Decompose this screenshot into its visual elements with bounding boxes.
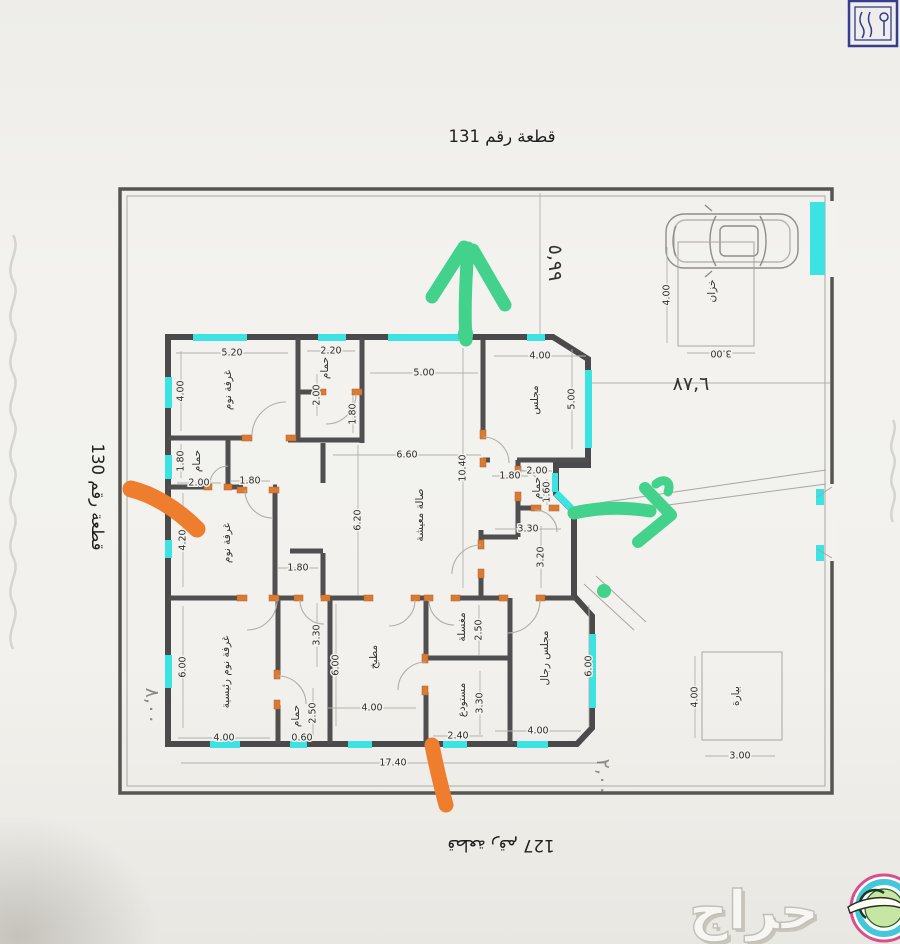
dimension-label: 5.00 bbox=[567, 388, 578, 409]
dimension-label: 3.00 bbox=[729, 751, 750, 762]
room-label: صالة معيشة bbox=[414, 488, 426, 541]
room-label: غرفة نوم bbox=[222, 369, 234, 410]
dimension-label: 3.20 bbox=[536, 546, 547, 567]
dimension-label: 6.20 bbox=[353, 509, 364, 530]
room-label: حمام bbox=[319, 357, 331, 379]
dimension-label: 1.60 bbox=[542, 481, 553, 502]
bottom-offset-note: ٢,٠٠ bbox=[592, 759, 614, 796]
dimension-label: 4.00 bbox=[361, 703, 382, 714]
dimension-label: 6.00 bbox=[584, 655, 595, 676]
dimension-label: 4.00 bbox=[527, 726, 548, 737]
dimension-label: 4.00 bbox=[662, 284, 673, 305]
orange-marker-bottom bbox=[432, 745, 446, 805]
dimension-label: 5.20 bbox=[221, 348, 242, 359]
dimension-label: 2.20 bbox=[320, 346, 341, 357]
pit-rect bbox=[702, 652, 782, 740]
room-label: مغسلة bbox=[456, 612, 468, 641]
dimension-label: 17.40 bbox=[379, 758, 406, 769]
haraj-watermark: حراج حراج bbox=[689, 875, 900, 944]
green-arrow-right bbox=[574, 508, 650, 513]
dimension-label: 1.80 bbox=[176, 450, 187, 471]
plot-title-top: قطعة رقم 131 bbox=[448, 127, 555, 147]
septic-pit-area bbox=[702, 652, 782, 740]
room-label: حمام bbox=[290, 705, 302, 727]
certification-stamp bbox=[849, 1, 897, 46]
dimension-label: 4.00 bbox=[176, 380, 187, 401]
green-arrow-up bbox=[465, 248, 468, 340]
dimension-label: 2.00 bbox=[526, 466, 547, 477]
right-offset-note: ٨٧,٦ bbox=[673, 373, 710, 395]
dimension-label: 6.00 bbox=[331, 654, 342, 675]
dimension-layer: 5.204.002.202.001.805.006.6010.406.201.8… bbox=[176, 247, 776, 769]
entrance-gap bbox=[826, 484, 838, 561]
dimension-label: 2.00 bbox=[188, 478, 209, 489]
dimension-label: 1.80 bbox=[348, 403, 359, 424]
street-width-note: ٥,٩٩ bbox=[544, 245, 566, 282]
dimension-label: 10.40 bbox=[458, 454, 469, 481]
room-label: حمام bbox=[531, 477, 543, 499]
dimension-label: 3.30 bbox=[517, 524, 538, 535]
dimension-label: 2.50 bbox=[474, 619, 485, 640]
doors bbox=[204, 389, 559, 709]
dimension-label: 4.00 bbox=[213, 733, 234, 744]
dimension-label: 4.00 bbox=[690, 686, 701, 707]
room-label: بيارة bbox=[730, 686, 742, 706]
left-offset-note: ٨,٠٠ bbox=[141, 688, 163, 725]
green-dot bbox=[597, 584, 611, 598]
dimension-label: 0.60 bbox=[291, 733, 312, 744]
dimension-label: 4.20 bbox=[178, 529, 189, 550]
dimension-label: 1.80 bbox=[239, 476, 260, 487]
brand-text: حراج bbox=[689, 879, 819, 942]
dimension-label: 4.00 bbox=[529, 351, 550, 362]
room-label: مجلس رجال bbox=[539, 631, 551, 686]
room-label: غرفة نوم bbox=[221, 522, 233, 563]
dimension-label: 2.00 bbox=[312, 384, 323, 405]
room-label: مطبخ bbox=[368, 645, 380, 669]
dimension-label: 3.30 bbox=[475, 692, 486, 713]
orange-marker-left bbox=[131, 489, 197, 529]
dimension-label: 6.60 bbox=[396, 450, 417, 461]
dimension-label: 5.00 bbox=[413, 368, 434, 379]
gate-window bbox=[810, 202, 825, 275]
car-drawing bbox=[666, 205, 798, 277]
faint-handwriting bbox=[10, 235, 894, 649]
dimension-label: 2.40 bbox=[447, 731, 468, 742]
brand-icon bbox=[848, 875, 900, 941]
room-label: غرفة نوم رئيسية bbox=[220, 635, 232, 708]
room-label: حمام bbox=[191, 450, 203, 472]
plot-label-left: قطعة رقم 130 bbox=[87, 443, 107, 550]
gate-gap bbox=[826, 201, 838, 277]
floor-plan-page: 5.204.002.202.001.805.006.6010.406.201.8… bbox=[0, 0, 900, 944]
dimension-label: 1.80 bbox=[499, 471, 520, 482]
room-label: خزان bbox=[706, 280, 718, 303]
room-label: مستودع bbox=[456, 683, 468, 718]
dimension-label: 1.80 bbox=[287, 563, 308, 574]
dimension-label: 2.50 bbox=[308, 702, 319, 723]
plot-label-bottom: قطعة رقم 127 bbox=[447, 835, 554, 855]
green-splash bbox=[458, 327, 473, 342]
green-marker-annotations bbox=[432, 247, 671, 598]
dimension-label: 3.00 bbox=[710, 348, 731, 359]
dimension-label: 6.00 bbox=[178, 656, 189, 677]
dimension-label: 3.30 bbox=[312, 624, 323, 645]
room-label: مجلس bbox=[529, 385, 541, 414]
